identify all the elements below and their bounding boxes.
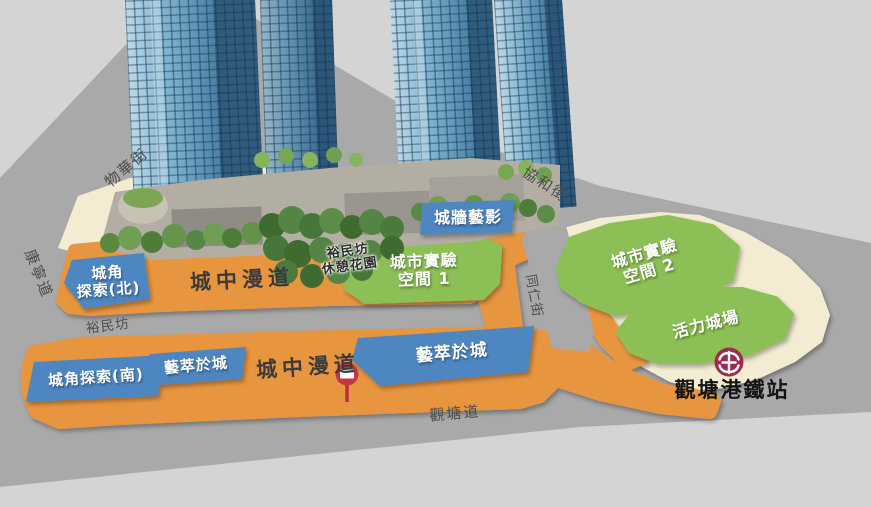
wall-art-label: 城牆藝影 xyxy=(434,208,502,228)
urban-lab-1-label: 城市實驗 空間 1 xyxy=(389,251,458,290)
station-name-label: 觀塘港鐵站 xyxy=(675,378,790,402)
mtr-icon xyxy=(715,348,744,377)
kwun-tong-map: 物華街 康寧道 協和街 同仁街 裕民坊 觀塘道 城中漫道 城中漫道 裕民坊 休憩… xyxy=(0,0,871,507)
corner-north-label: 城角 探索(北) xyxy=(75,263,141,302)
tower-1 xyxy=(125,0,264,194)
urban-lab-1-line2: 空間 1 xyxy=(390,270,459,291)
